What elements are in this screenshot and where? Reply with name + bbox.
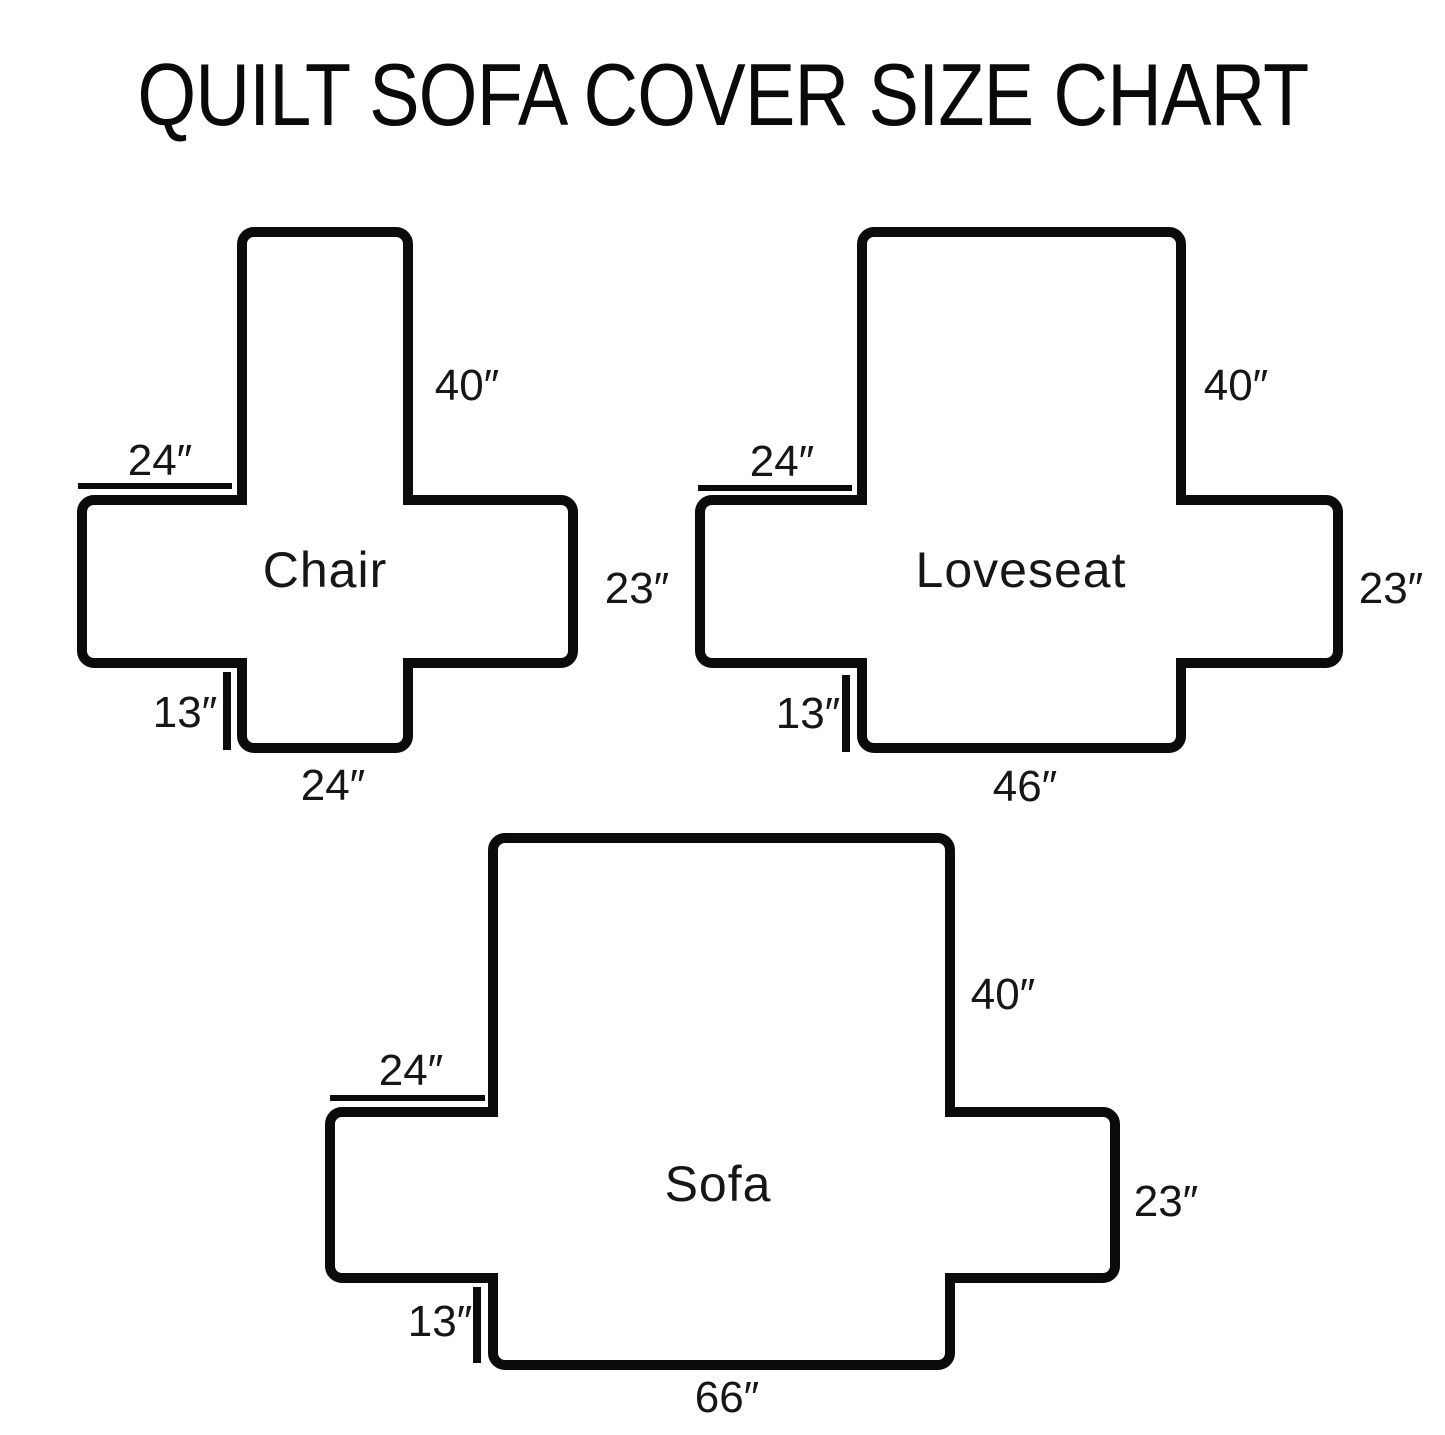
chair-arm-side-height-label: 23″ [605,564,670,614]
sofa-skirt-dim-line [473,1287,481,1363]
chair-back-height-label: 40″ [435,361,500,411]
sofa-arm-top-width-label: 24″ [379,1046,444,1096]
loveseat-arm-top-width-label: 24″ [750,437,815,487]
sofa-arm-side-height-label: 23″ [1134,1177,1199,1227]
loveseat-skirt-dim-line [842,675,850,752]
chair-skirt-dim-line [223,672,231,750]
chair-seat-bottom-width-label: 24″ [301,761,366,811]
loveseat-arm-side-height-label: 23″ [1359,564,1424,614]
sofa-outline [330,838,1115,1365]
sofa-skirt-drop-label: 13″ [408,1297,473,1347]
chair-arm-top-width-label: 24″ [128,436,193,486]
chair-outline [82,232,573,748]
sofa-seat-bottom-width-label: 66″ [695,1373,760,1423]
loveseat-seat-bottom-width-label: 46″ [993,762,1058,812]
chair-name-label: Chair [263,541,387,599]
sofa-back-height-label: 40″ [971,970,1036,1020]
loveseat-skirt-drop-label: 13″ [776,689,841,739]
loveseat-back-height-label: 40″ [1204,361,1269,411]
loveseat-name-label: Loveseat [916,541,1127,599]
size-chart: QUILT SOFA COVER SIZE CHART 40″ 24″ Chai… [0,0,1445,1435]
chair-skirt-drop-label: 13″ [153,688,218,738]
sofa-name-label: Sofa [665,1155,772,1213]
